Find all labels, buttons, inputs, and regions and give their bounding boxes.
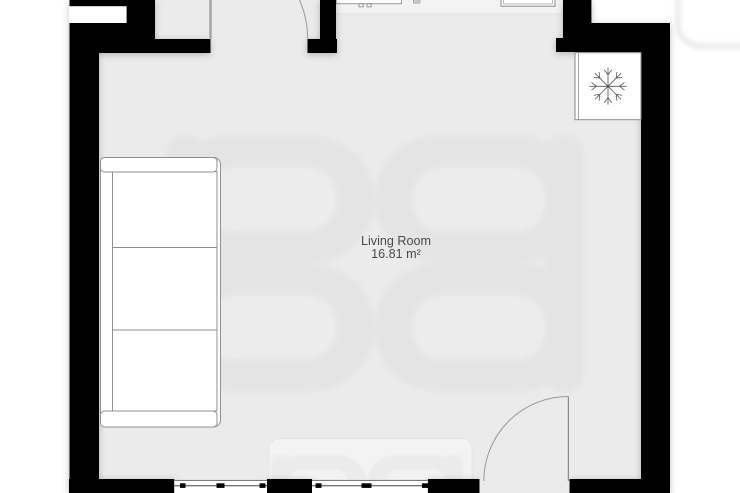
svg-text:16.81 m²: 16.81 m² [371, 247, 421, 261]
